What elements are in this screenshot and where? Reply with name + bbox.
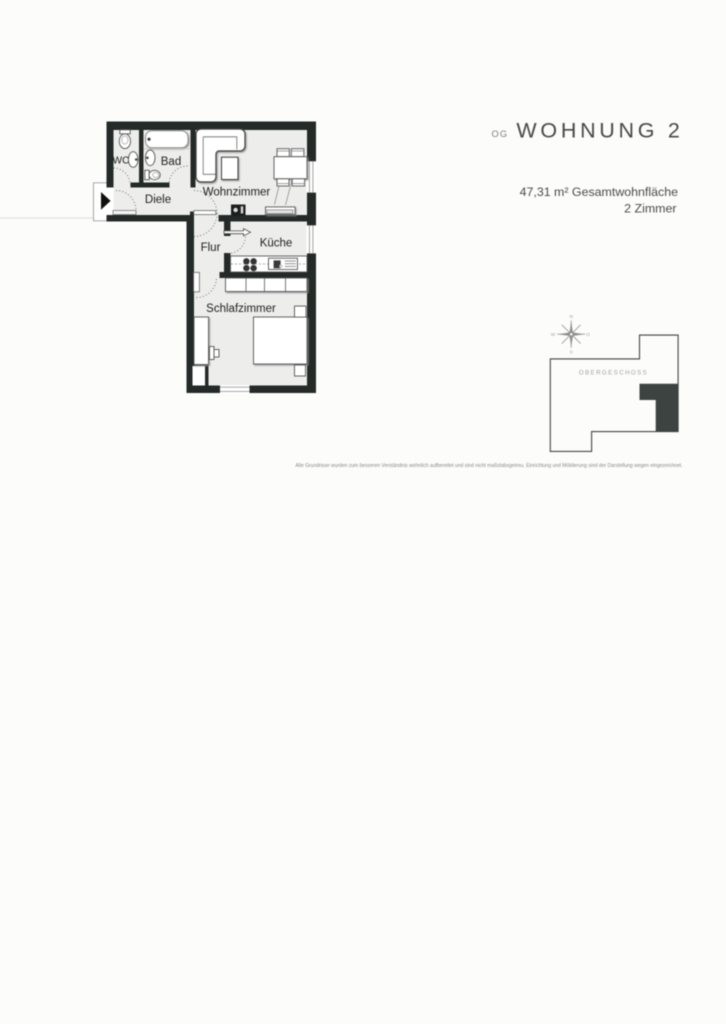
svg-text:OBERGESCHOSS: OBERGESCHOSS xyxy=(579,370,648,377)
svg-text:OG: OG xyxy=(492,129,509,139)
svg-text:W: W xyxy=(551,332,556,338)
svg-text:Diele: Diele xyxy=(145,194,171,206)
svg-text:Flur: Flur xyxy=(201,242,221,254)
svg-text:Küche: Küche xyxy=(260,238,293,250)
svg-text:Schlafzimmer: Schlafzimmer xyxy=(206,303,276,315)
svg-text:47,31 m² Gesamtwohnfläche: 47,31 m² Gesamtwohnfläche xyxy=(520,185,679,199)
svg-text:N: N xyxy=(569,314,573,320)
svg-text:Bad: Bad xyxy=(161,156,181,168)
svg-text:Alle Grundrisse wurden zum bes: Alle Grundrisse wurden zum besseren Vers… xyxy=(295,463,682,469)
svg-text:O: O xyxy=(586,332,590,338)
svg-text:Wohnzimmer: Wohnzimmer xyxy=(203,186,271,198)
svg-text:2 Zimmer: 2 Zimmer xyxy=(624,202,676,216)
svg-text:WC: WC xyxy=(113,156,130,167)
svg-text:WOHNUNG 2: WOHNUNG 2 xyxy=(516,118,683,142)
svg-text:S: S xyxy=(570,350,573,356)
